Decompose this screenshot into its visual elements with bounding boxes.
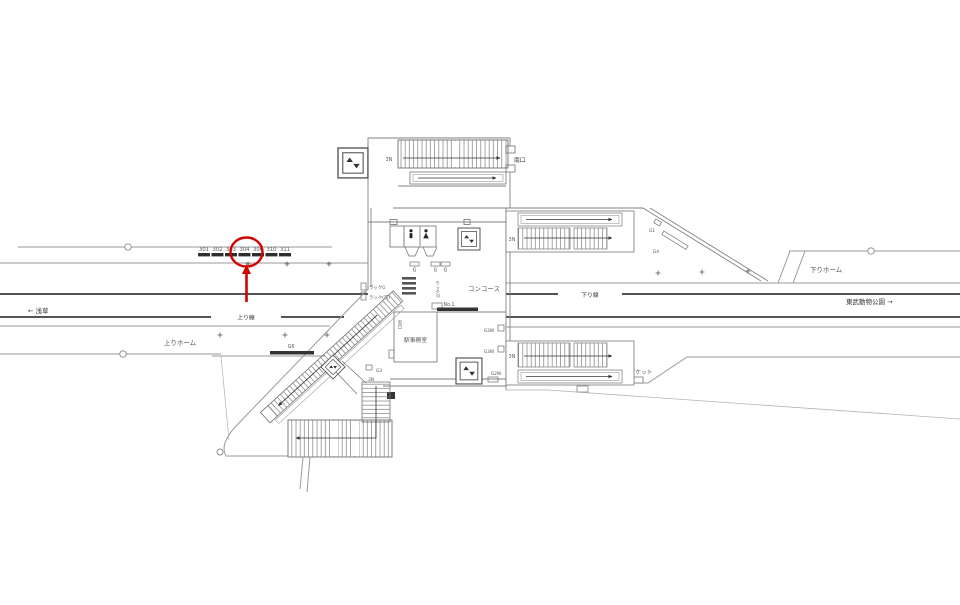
track-lines: 下り線 上り線 ← 浅草 東武動物公園 → [0, 291, 960, 322]
billboard-number: 311 [280, 247, 290, 253]
rack-g-vertical-label: ラックG [435, 281, 441, 298]
survey-cross [700, 270, 705, 275]
south-exit-label: 南口 [514, 156, 526, 164]
stairs-east-lower-label: 3N [509, 354, 516, 360]
billboard-row: 301 302 303 304 306 310 311 [198, 247, 291, 256]
survey-cross [285, 262, 290, 267]
up-platform-label: 上りホーム [164, 338, 197, 347]
toward-asakusa-label: ← 浅草 [28, 306, 49, 315]
g6-label: G6 [288, 344, 295, 350]
ticket-window-label: 窓口 [397, 319, 402, 329]
g3w-upper-label: G3W [484, 328, 495, 334]
concourse-label: コンコース [468, 285, 500, 293]
ticket-gates [402, 277, 416, 295]
station-floorplan: 下りホーム 下り線 上り線 ← 浅草 東武動物公園 → 上りホーム ポケット [0, 0, 960, 605]
platform-marker-circle [120, 351, 126, 357]
rack-g4-label: G4 [653, 249, 659, 255]
elevator-icon [458, 228, 480, 250]
billboard-number: 301 [199, 247, 209, 253]
floorplan-svg: 下りホーム 下り線 上り線 ← 浅草 東武動物公園 → 上りホーム ポケット [0, 0, 960, 605]
concourse: G G G コンコース ラックG ラック(可) ラックG No.1 [361, 226, 500, 311]
platform-marker-circle [868, 248, 874, 254]
g3-label: G3 [376, 368, 382, 374]
toward-tobu-zoo-label: 東武動物公園 → [846, 297, 893, 306]
rack-g-left-label: G [413, 268, 417, 274]
survey-cross [656, 271, 661, 276]
g3w-lower-label: G3W [484, 349, 495, 355]
billboard-number: 310 [267, 247, 277, 253]
elevator-icon [456, 358, 482, 384]
platform-box [577, 386, 588, 392]
rack-g-mid-label: G [434, 268, 438, 274]
diagonal-racks: G1 G4 [649, 219, 688, 255]
g6-billboard [270, 351, 314, 355]
rack-g1-label: G1 [649, 228, 655, 234]
north-escalator [410, 172, 506, 184]
pocket-box [634, 377, 643, 383]
upper-platform-edges [0, 244, 368, 267]
male-restroom-icon [409, 229, 412, 238]
female-restroom-icon [423, 229, 429, 238]
stairs-south-label: 3N [368, 377, 374, 383]
elevator-icon [338, 148, 368, 178]
down-platform-label: 下りホーム [810, 266, 843, 274]
east-upper-stairs: 3N [506, 211, 634, 252]
stairs-east-upper-label: 3N [509, 237, 516, 243]
rack-g-wall-label: ラックG [369, 285, 386, 291]
stairs-north-label: 3N [386, 157, 393, 163]
down-platform: 下りホーム [506, 248, 960, 283]
survey-cross [218, 333, 223, 338]
billboard-number: 304 [240, 247, 251, 253]
station-office-label: 駅事務室 [404, 336, 427, 344]
up-line-label: 上り線 [237, 314, 255, 322]
no1-label: No.1 [443, 302, 454, 308]
no1-billboard [437, 308, 478, 312]
down-line-label: 下り線 [581, 291, 599, 299]
platform-marker-circle [217, 449, 223, 455]
survey-cross [283, 333, 288, 338]
survey-cross [327, 262, 332, 267]
g2w-label: G2W [491, 371, 502, 377]
billboard-number: 302 [213, 247, 223, 253]
platform-marker-circle [125, 244, 131, 250]
east-lower-stairs: 3N [506, 341, 634, 385]
rack-g-right-label: G [444, 268, 448, 274]
north-stairs [398, 140, 508, 168]
restroom [404, 226, 436, 247]
